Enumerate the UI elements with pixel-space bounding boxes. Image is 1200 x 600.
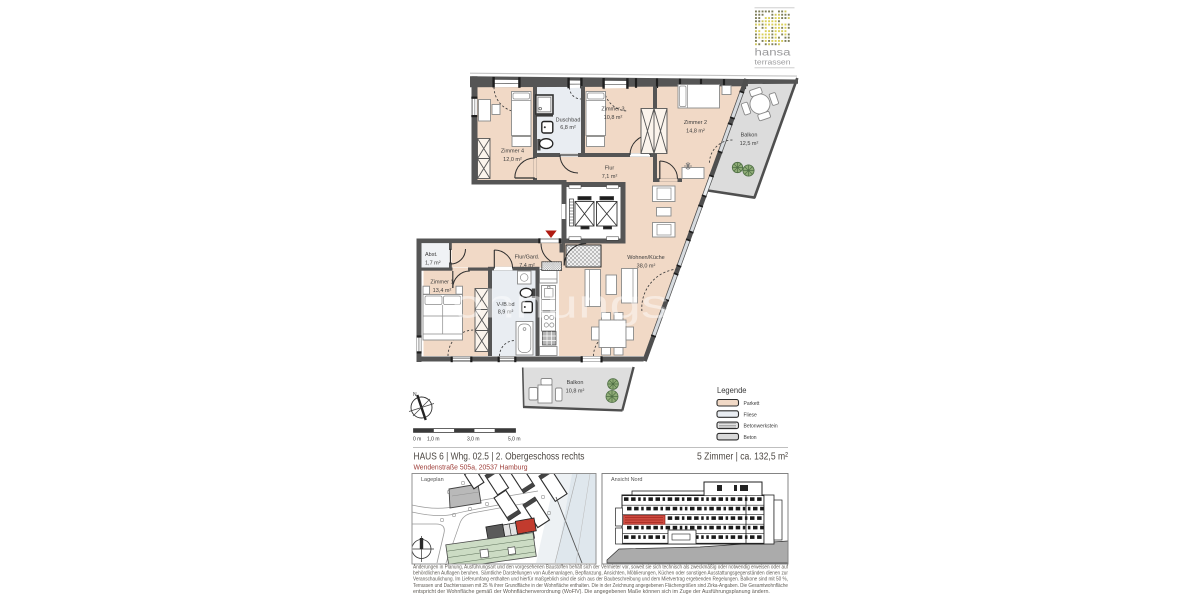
svg-text:Zimmer 3: Zimmer 3 xyxy=(601,107,624,113)
svg-text:5 Zimmer | ca. 132,5 m²: 5 Zimmer | ca. 132,5 m² xyxy=(697,452,789,463)
svg-text:6,8 m²: 6,8 m² xyxy=(560,125,576,131)
svg-text:12,5 m²: 12,5 m² xyxy=(740,141,759,147)
svg-text:10,8 m²: 10,8 m² xyxy=(604,115,623,121)
svg-text:HAUS 6 | Whg. 02.5 | 2. Oberge: HAUS 6 | Whg. 02.5 | 2. Obergeschoss rec… xyxy=(414,452,585,463)
svg-text:38,0 m²: 38,0 m² xyxy=(637,264,656,270)
svg-text:Ansicht Nord: Ansicht Nord xyxy=(611,477,643,483)
svg-text:1,0 m: 1,0 m xyxy=(427,437,440,443)
svg-text:Terrassen und Dachterrassen mi: Terrassen und Dachterrassen mit 25 % ihr… xyxy=(413,583,788,589)
svg-text:Zimmer 2: Zimmer 2 xyxy=(684,120,707,126)
svg-text:Veranschaulichung. Im Lieferum: Veranschaulichung. Im Lieferumfang entha… xyxy=(413,577,788,583)
svg-text:Lageplan: Lageplan xyxy=(421,477,444,483)
svg-text:Betonwerkstein: Betonwerkstein xyxy=(744,424,778,430)
svg-text:5,0 m: 5,0 m xyxy=(508,437,521,443)
svg-text:entspricht der Wohnfläche gemä: entspricht der Wohnfläche gemäß der Wohn… xyxy=(413,589,770,595)
svg-text:Flur: Flur xyxy=(605,166,615,172)
svg-text:Zimmer 1: Zimmer 1 xyxy=(430,280,453,286)
svg-text:Wendenstraße 505a, 20537 Hambu: Wendenstraße 505a, 20537 Hamburg xyxy=(414,465,528,472)
svg-text:Abst.: Abst. xyxy=(425,252,438,258)
svg-text:Wohnen/Küche: Wohnen/Küche xyxy=(627,255,665,261)
svg-text:Legende: Legende xyxy=(717,385,747,395)
svg-text:3,0 m: 3,0 m xyxy=(467,437,480,443)
svg-text:behördlichen Auflagen beruhen.: behördlichen Auflagen beruhen. Sämtliche… xyxy=(413,571,788,577)
svg-text:7,4 m²: 7,4 m² xyxy=(519,263,535,269)
svg-text:13,4 m²: 13,4 m² xyxy=(433,288,452,294)
svg-text:Balkon: Balkon xyxy=(741,133,758,139)
svg-text:12,0 m²: 12,0 m² xyxy=(503,157,522,163)
svg-text:Änderungen in Planung, Ausführ: Änderungen in Planung, Ausführungsart un… xyxy=(413,564,788,571)
svg-text:terrassen: terrassen xyxy=(755,60,791,67)
svg-text:Fliese: Fliese xyxy=(744,412,758,418)
svg-text:Parkett: Parkett xyxy=(744,401,760,407)
svg-text:0 m: 0 m xyxy=(413,437,421,443)
svg-text:1,7 m²: 1,7 m² xyxy=(425,261,441,267)
svg-text:Zimmer 4: Zimmer 4 xyxy=(501,149,524,155)
svg-text:10,8 m²: 10,8 m² xyxy=(566,389,585,395)
svg-text:Beton: Beton xyxy=(744,435,757,441)
svg-text:hansa: hansa xyxy=(755,48,792,59)
svg-text:7,1 m²: 7,1 m² xyxy=(602,174,618,180)
svg-text:N: N xyxy=(413,392,417,398)
svg-text:Flur/Gard.: Flur/Gard. xyxy=(515,255,540,261)
svg-text:ohnungssow: ohnungssow xyxy=(452,283,770,327)
svg-text:Balkon: Balkon xyxy=(567,380,584,386)
svg-text:Duschbad: Duschbad xyxy=(556,118,581,124)
svg-text:14,8 m²: 14,8 m² xyxy=(686,129,705,135)
